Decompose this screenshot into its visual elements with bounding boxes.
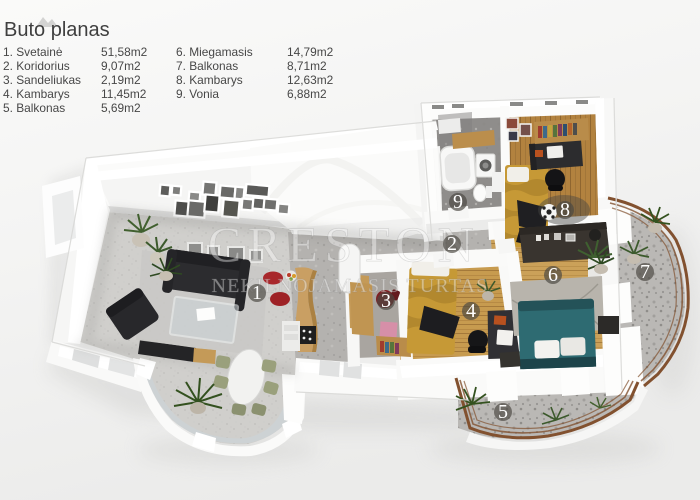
svg-text:51,58m2: 51,58m2 (101, 45, 148, 59)
svg-text:1. Svetainė: 1. Svetainė (3, 45, 63, 59)
svg-text:6: 6 (548, 264, 558, 286)
svg-text:7: 7 (640, 261, 650, 283)
svg-text:6. Miegamasis: 6. Miegamasis (176, 45, 253, 59)
svg-text:6,88m2: 6,88m2 (287, 87, 327, 101)
svg-text:3. Sandeliukas: 3. Sandeliukas (3, 73, 81, 87)
svg-text:5: 5 (498, 401, 508, 423)
svg-text:CRESTON: CRESTON (208, 216, 480, 272)
svg-text:2: 2 (447, 233, 457, 255)
svg-text:4: 4 (466, 300, 476, 322)
svg-text:9,07m2: 9,07m2 (101, 59, 141, 73)
svg-text:Buto planas: Buto planas (4, 19, 110, 41)
svg-text:11,45m2: 11,45m2 (101, 87, 147, 101)
svg-text:3: 3 (381, 290, 391, 312)
svg-text:4. Kambarys: 4. Kambarys (3, 87, 70, 101)
svg-text:8. Kambarys: 8. Kambarys (176, 73, 243, 87)
svg-text:5,69m2: 5,69m2 (101, 101, 141, 115)
svg-text:5. Balkonas: 5. Balkonas (3, 101, 65, 115)
svg-text:8,71m2: 8,71m2 (287, 59, 327, 73)
svg-text:12,63m2: 12,63m2 (287, 73, 334, 87)
svg-text:8: 8 (560, 199, 570, 221)
svg-text:14,79m2: 14,79m2 (287, 45, 334, 59)
svg-text:1: 1 (252, 282, 262, 304)
svg-text:7. Balkonas: 7. Balkonas (176, 59, 238, 73)
svg-text:9: 9 (453, 191, 463, 213)
svg-text:2. Koridorius: 2. Koridorius (3, 59, 70, 73)
svg-text:9. Vonia: 9. Vonia (176, 87, 219, 101)
svg-text:2,19m2: 2,19m2 (101, 73, 141, 87)
